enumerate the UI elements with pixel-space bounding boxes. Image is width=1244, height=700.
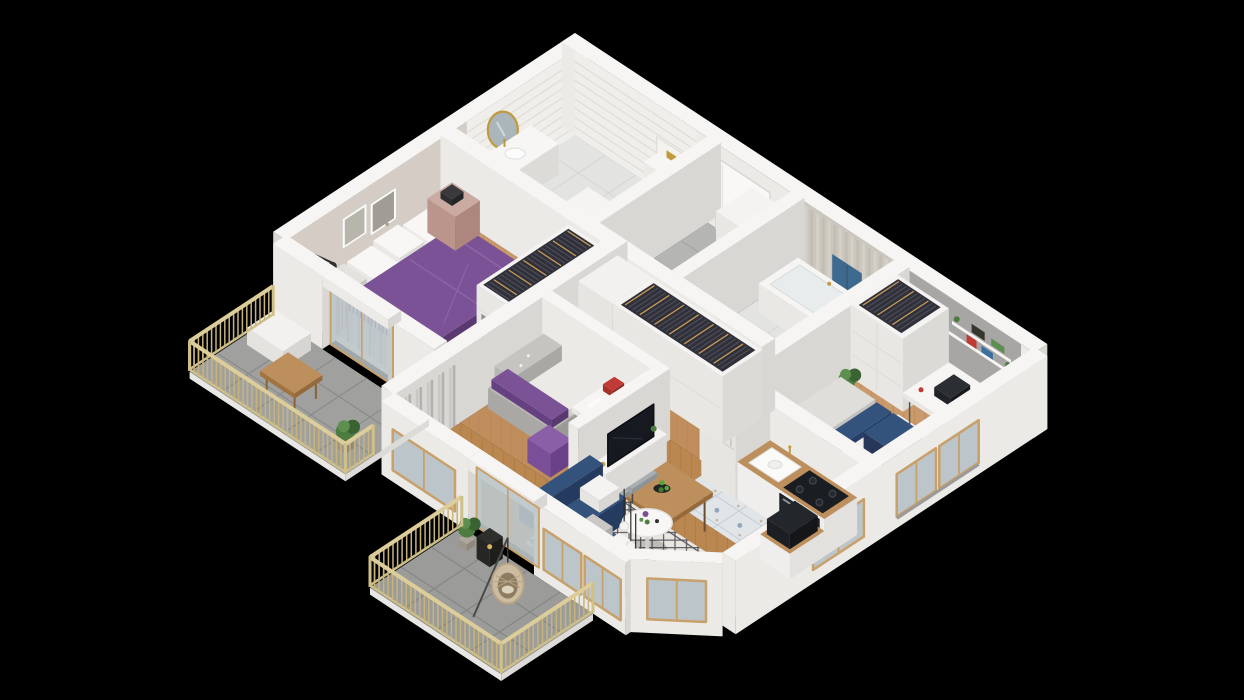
floor-plan-render: ❄ [0,0,1244,700]
wall-bay [631,548,723,636]
render-canvas: ❄ [0,0,1244,700]
